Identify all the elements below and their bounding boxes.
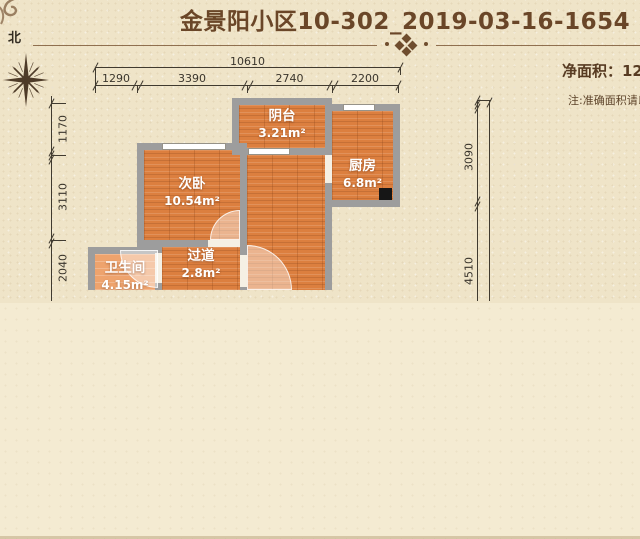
unrendered-lower-band [0, 303, 640, 539]
dim-left-seg1: 1170 [57, 115, 70, 143]
room-area: 3.21m² [239, 125, 325, 142]
room-area: 4.15m² [95, 277, 155, 290]
bedroom-door-opening [208, 240, 240, 247]
north-label: 北 [8, 27, 21, 46]
divider-dot-left [385, 42, 389, 46]
dim-line [398, 85, 399, 93]
kitchen-label: 厨房 6.8m² [332, 158, 393, 192]
balcony-window [248, 148, 290, 155]
floorplan-canvas[interactable]: 阴台 3.21m² 厨房 6.8m² 次卧 10.54m² 过道 2.8m² 卫… [88, 98, 400, 290]
dim-right-seg2: 4510 [463, 257, 476, 285]
divider-diamond-ornament [396, 35, 416, 55]
dim-line [95, 67, 400, 68]
dim-line [332, 85, 333, 93]
floorplan-page: 金景阳小区10-302_2019-03-16-1654 北 净面积：124 注:… [0, 0, 640, 539]
dim-top-seg3: 2740 [247, 72, 332, 85]
hallway-label: 过道 2.8m² [162, 248, 240, 282]
wall [325, 98, 332, 155]
dim-right-seg1: 3090 [463, 143, 476, 171]
compass-rose-icon [2, 52, 50, 108]
dim-line [400, 67, 401, 75]
room-name: 过道 [162, 248, 240, 265]
dim-line [489, 100, 490, 301]
wall [88, 247, 95, 290]
dim-top-seg4: 2200 [332, 72, 398, 85]
kitchen-window [343, 104, 375, 111]
room-name: 厨房 [332, 158, 393, 175]
room-area: 10.54m² [144, 193, 240, 210]
dim-left-seg3: 2040 [57, 254, 70, 282]
kitchen-door-opening [325, 155, 332, 183]
divider-line-left [33, 45, 377, 46]
net-area-text: 净面积：124 [562, 60, 640, 81]
bedroom-label: 次卧 10.54m² [144, 176, 240, 210]
divider-dot-right [424, 42, 428, 46]
room-area: 6.8m² [332, 175, 393, 192]
dim-top-seg2: 3390 [137, 72, 247, 85]
room-name: 卫生间 [95, 260, 155, 277]
dim-line [51, 103, 66, 104]
bathroom-label: 卫生间 4.15m² [95, 260, 155, 290]
dim-left-seg2: 3110 [57, 183, 70, 211]
dim-top-seg1: 1290 [95, 72, 137, 85]
dim-line [51, 96, 52, 301]
room-name: 阴台 [239, 108, 325, 125]
area-note-text: 注:准确面积请以 [568, 92, 640, 108]
wall [240, 143, 247, 247]
wall [325, 200, 400, 207]
dim-line [247, 85, 248, 93]
wall [137, 143, 144, 247]
livingroom-door-opening [240, 255, 247, 287]
balcony-label: 阴台 3.21m² [239, 108, 325, 142]
page-title: 金景阳小区10-302_2019-03-16-1654 [0, 2, 640, 36]
room-area: 2.8m² [162, 265, 240, 282]
wall [232, 98, 332, 105]
dim-line [137, 85, 138, 93]
wall [393, 104, 400, 207]
bedroom-window [162, 143, 226, 150]
divider-line-right [436, 45, 640, 46]
room-name: 次卧 [144, 176, 240, 193]
